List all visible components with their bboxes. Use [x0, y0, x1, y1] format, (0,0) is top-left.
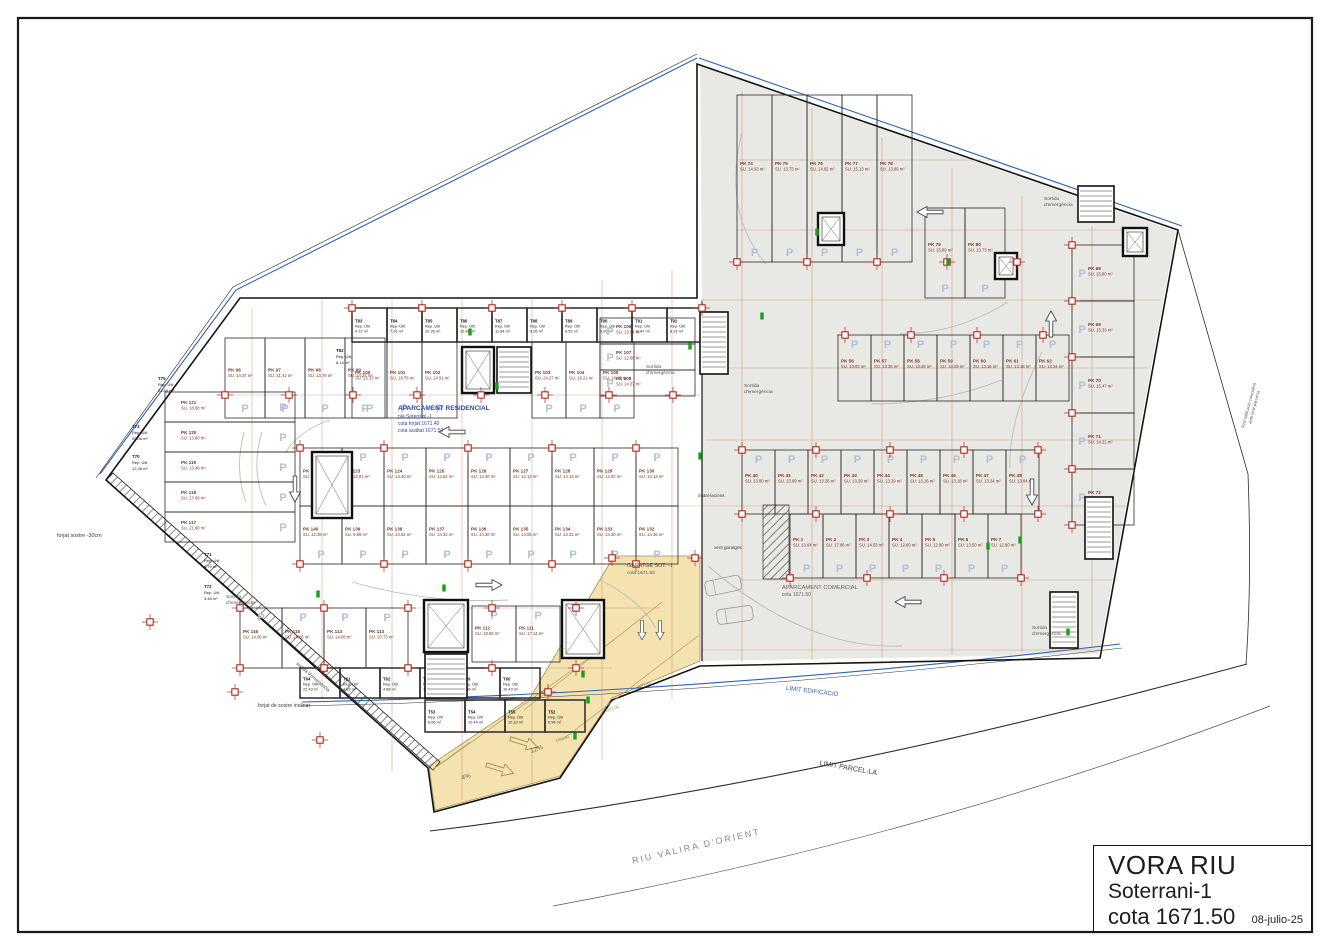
stall-area: SU. 14.30 m² [597, 532, 622, 537]
forjat-inclinat-label: forjat de sostre inclinat [258, 703, 310, 709]
traster-t75-area: 23.88 m² [158, 388, 174, 393]
stall-area: SU. 14.37 m² [616, 382, 641, 387]
p-glyph: P [279, 462, 286, 474]
traster-area: 11.84 m² [495, 328, 511, 333]
traster-t72-rep: Rep. Útil [204, 590, 219, 595]
column-marker [606, 392, 612, 398]
column-marker [1040, 332, 1046, 338]
stall-area: SU. 18.68 m² [181, 406, 206, 411]
column-marker [381, 445, 387, 451]
p-glyph: P [1078, 436, 1085, 448]
column-marker [349, 305, 355, 311]
stall-area: SU. 13.26 m² [811, 478, 836, 483]
stall-id: PK 96 [228, 368, 241, 373]
column-marker [414, 392, 420, 398]
stall-area: SU. 14.40 m² [471, 474, 496, 479]
emergency-exit-marker [316, 591, 319, 598]
stall-area: SU. 12.80 m² [892, 542, 917, 547]
stall-id: PK 126 [471, 468, 487, 473]
p-glyph: P [279, 522, 286, 534]
stall-id: PK 134 [555, 526, 571, 531]
stall-area: SU. 13.39 m² [844, 478, 869, 483]
p-glyph: P [611, 452, 618, 464]
column-marker [1018, 575, 1024, 581]
stall-area: SU. 24.27 m² [535, 375, 560, 380]
direction-arrow [290, 476, 301, 502]
p-glyph: P [485, 549, 492, 561]
stall-id: PK 111 [519, 626, 534, 631]
column-marker [542, 392, 548, 398]
stall-id: PK 46 [943, 473, 956, 478]
stall-id: PK 61 [1006, 359, 1019, 364]
stall-area: SU. 18.78 m² [390, 375, 415, 380]
stall-id: PK 77 [845, 161, 858, 166]
column-marker [961, 511, 967, 517]
stall-id: PK 97 [268, 368, 281, 373]
stall-id: PK 124 [387, 468, 403, 473]
stall-id: PK 41 [778, 473, 791, 478]
column-marker [699, 305, 705, 311]
p-glyph: P [917, 339, 924, 351]
hatched-column [763, 505, 789, 579]
traster-t73-id: T73 [132, 424, 140, 429]
p-glyph: P [981, 283, 988, 295]
p-glyph: P [490, 610, 497, 622]
traster-area: 7.26 m² [390, 328, 404, 333]
stall-id: PK 105 [603, 370, 619, 375]
column-marker [974, 332, 980, 338]
column-marker [297, 561, 303, 567]
stall-area: SU. 14.82 m² [810, 167, 835, 172]
traster-area: 8.05 m² [530, 328, 544, 333]
stall-id: PK 78 [880, 161, 893, 166]
stall-area: SU. 13.50 m² [958, 542, 983, 547]
sortida-2b: d'emergència [744, 389, 773, 395]
forjat-sostre-label: forjat sostre -30cm [57, 533, 102, 539]
column-marker [549, 445, 555, 451]
column-marker [489, 665, 495, 671]
stall-id: PK 107 [616, 350, 632, 355]
traster-t73-rep: Rep. Útil [132, 430, 147, 435]
column-marker [465, 561, 471, 567]
project-name: VORA RIU [1108, 851, 1303, 880]
limit-line-topleft-black [96, 54, 697, 478]
stall-id: PK 135 [513, 526, 529, 531]
stall-id: PK 108 [616, 376, 632, 381]
traster-area: 10.12 m² [508, 719, 524, 724]
plan-shapes [18, 18, 1312, 932]
p-glyph: P [279, 432, 286, 444]
column-marker [633, 445, 639, 451]
emergency-exit-marker [1066, 629, 1069, 636]
p-glyph: P [241, 403, 248, 415]
aparcament-residencial-line3: cota forjat 1671.40 [398, 421, 440, 427]
stall-area: SU. 27.66 m² [181, 496, 206, 501]
p-glyph: P [803, 563, 810, 575]
limit-edificacio-label: LIMIT EDIFICACIÓ [786, 685, 839, 698]
p-glyph: P [527, 452, 534, 464]
traster-area: 4.83 m² [343, 687, 357, 692]
sortida-3a: Sortida [1044, 196, 1060, 202]
stall-area: SU. 13.16 m² [973, 364, 998, 369]
column-marker [1069, 354, 1075, 360]
stall-id: PK 130 [639, 468, 655, 473]
traster-area: 10.43 m² [503, 687, 519, 692]
stall-id: PK 7 [991, 537, 1002, 542]
column-marker [787, 575, 793, 581]
traster-area: 12.80 m² [460, 328, 476, 333]
stall-id: PK 102 [425, 370, 441, 375]
column-marker [573, 605, 579, 611]
traster-t82-id: T82 [336, 348, 344, 353]
column-marker [813, 447, 819, 453]
sortida-1a: Sortida [646, 364, 662, 370]
stall-id: PK 60 [973, 359, 986, 364]
stall-area: SU. 14.06 m² [285, 635, 310, 640]
stall-id: PK 44 [877, 473, 890, 478]
riu-valira-label: RIU VALIRA D'ORIENT [631, 826, 761, 865]
traster-area: 6.06 m² [428, 719, 442, 724]
stall-id: PK 136 [471, 526, 487, 531]
traster-t71-area: 8.79 m² [204, 564, 218, 569]
traster-t73-area: 20.06 m² [132, 436, 148, 441]
stall-id: PK 106 [616, 324, 632, 329]
stall-area: SU. 13.80 m² [181, 436, 206, 441]
stall-area: SU. 12.80 m² [925, 542, 950, 547]
stall-id: PK 98 [308, 368, 321, 373]
emergency-exit-marker [581, 671, 584, 678]
cota-label: cota 1671.50 [1108, 904, 1235, 929]
column-marker [286, 392, 292, 398]
p-glyph: P [869, 563, 876, 575]
p-glyph: P [953, 454, 960, 466]
stall-id: PK 72 [1088, 490, 1101, 495]
column-marker [1069, 242, 1075, 248]
stall-area: SU. 13.73 m² [775, 167, 800, 172]
traster-area: 10.36 m² [425, 328, 441, 333]
column-marker [465, 445, 471, 451]
stall-id: PK 56 [841, 359, 854, 364]
emergency-exit-marker [573, 733, 576, 740]
stall-id: PK 57 [874, 359, 887, 364]
stall-area: SU. 20.73 m² [369, 635, 394, 640]
aparcament-comercial-cota: cota 1671.50 [782, 592, 811, 598]
stall-id: PK 100 [355, 370, 371, 375]
sortida-5a: Sortida [1032, 625, 1048, 631]
column-marker [317, 737, 323, 743]
emergency-exit-marker [468, 329, 471, 336]
stall-area: SU. 13.73 m² [968, 247, 993, 252]
stall-area: SU. 13.39 m² [907, 364, 932, 369]
stall-area: SU. 13.54 m² [616, 330, 641, 335]
stall-area: SU. 13.48 m² [181, 466, 206, 471]
p-glyph: P [851, 339, 858, 351]
stall-area: SU. 13.89 m² [880, 167, 905, 172]
p-glyph: P [854, 454, 861, 466]
aparcament-comercial-title: APARCAMENT COMERCIAL [782, 585, 859, 591]
column-marker [222, 392, 228, 398]
stall-id: PK 70 [1088, 378, 1101, 383]
column-marker [237, 665, 243, 671]
stall-id: PK 120 [181, 430, 197, 435]
p-glyph: P [1078, 324, 1085, 336]
p-glyph: P [606, 326, 613, 338]
stall-id: PK 116 [243, 629, 259, 634]
stall-id: PK 113 [369, 629, 385, 634]
stall-id: PK 59 [940, 359, 953, 364]
column-marker [842, 332, 848, 338]
p-glyph: P [1016, 339, 1023, 351]
p-glyph: P [884, 339, 891, 351]
stall-area: SU. 13.29 m² [877, 478, 902, 483]
traster-t70-rep: Rep. Útil [132, 460, 147, 465]
stall-id: PK 76 [810, 161, 823, 166]
stall-id: PK 3 [859, 537, 870, 542]
column-marker [864, 575, 870, 581]
stall-id: PK 79 [928, 242, 941, 247]
stall-id: PK 138 [387, 526, 403, 531]
column-marker [489, 605, 495, 611]
stall-area: SU. 13.18 m² [943, 478, 968, 483]
emergency-exit-marker [688, 343, 691, 350]
emergency-exit-marker [586, 697, 589, 704]
stall-id: PK 127 [513, 468, 529, 473]
column-marker [908, 332, 914, 338]
stair-core [425, 654, 467, 698]
stall-id: PK 117 [181, 520, 197, 525]
stall-area: SU. 12.38 m² [303, 532, 328, 537]
p-glyph: P [653, 452, 660, 464]
aparcament-residencial-line4: cota acabat 1671.50 [398, 428, 444, 434]
sortida-3b: d'emergència [1044, 202, 1073, 208]
p-glyph: P [755, 454, 762, 466]
p-glyph: P [527, 549, 534, 561]
stall-area: SU. 14.93 m² [740, 167, 765, 172]
traster-t70-area: 12.48 m² [132, 466, 148, 471]
stall-id: PK 115 [285, 629, 301, 634]
emergency-exit-marker [986, 543, 989, 550]
stair-core [1078, 186, 1114, 222]
p-glyph: P [856, 247, 863, 259]
column-marker [692, 555, 698, 561]
stall-area: SU. 13.18 m² [1006, 364, 1031, 369]
traster-t75-rep: Rep. Útil [158, 382, 173, 387]
column-marker [559, 305, 565, 311]
stall-area: SU. 15.13 m² [355, 375, 380, 380]
p-glyph: P [366, 403, 373, 415]
stall-id: PK 133 [597, 526, 613, 531]
stall-area: SU. 14.36 m² [639, 532, 664, 537]
direction-arrow [476, 580, 502, 591]
p-glyph: P [401, 549, 408, 561]
stall-id: PK 139 [345, 526, 361, 531]
column-marker [941, 575, 947, 581]
lane-curve [239, 432, 246, 502]
stall-area: SU. 14.31 m² [555, 532, 580, 537]
stall-area: SU. 14.40 m² [387, 474, 412, 479]
p-glyph: P [569, 452, 576, 464]
column-marker [321, 605, 327, 611]
column-marker [887, 447, 893, 453]
column-marker [874, 259, 880, 265]
p-glyph: P [569, 549, 576, 561]
traster-t72-area: 3.48 m² [204, 596, 218, 601]
p-glyph: P [443, 549, 450, 561]
emergency-exit-marker [442, 585, 445, 592]
stall-area: SU. 13.89 m² [778, 478, 803, 483]
p-glyph: P [653, 549, 660, 561]
stall-id: PK 45 [910, 473, 923, 478]
sortida-2a: Sortida [744, 383, 760, 389]
sortida-4b: d'emergència [226, 600, 255, 606]
stall-id: PK 104 [569, 370, 585, 375]
vent-garatges-label: vent garatges [714, 545, 743, 550]
traster-t71-id: T71 [204, 552, 212, 557]
traster-area: 8.14 m² [670, 328, 684, 333]
column-marker [350, 392, 356, 398]
stair-core [497, 347, 531, 393]
column-marker [961, 447, 967, 453]
traster-area: 0.94 m² [548, 719, 562, 724]
garatge-sot-cota: cota 1671.50 [627, 570, 655, 576]
stall-id: PK 74 [740, 161, 753, 166]
stall-area: SU. 21.41 m² [268, 373, 293, 378]
p-glyph: P [443, 452, 450, 464]
sortida-5b: d'emergència [1032, 631, 1061, 637]
stair-core [1085, 497, 1113, 559]
p-glyph: P [279, 492, 286, 504]
column-marker [1014, 259, 1020, 265]
stall-area: SU. 14.37 m² [228, 373, 253, 378]
column-marker [573, 665, 579, 671]
column-marker [419, 305, 425, 311]
column-marker [734, 259, 740, 265]
stall-area: SU. 13.84 m² [793, 542, 818, 547]
p-glyph: P [983, 339, 990, 351]
stall-id: PK 129 [597, 468, 613, 473]
stall-id: PK 80 [968, 242, 981, 247]
p-glyph: P [257, 612, 264, 624]
stall-area: SU. 13.24 m² [976, 478, 1001, 483]
p-glyph: P [321, 403, 328, 415]
stall-area: SU. 15.80 m² [1088, 272, 1113, 277]
stall-id: PK 43 [844, 473, 857, 478]
p-glyph: P [935, 563, 942, 575]
aparcament-residencial-line2: pla Soterrani -1 [398, 414, 432, 420]
column-marker [405, 605, 411, 611]
stall-area: SU. 14.13 m² [555, 474, 580, 479]
column-marker [549, 561, 555, 567]
title-block: VORA RIU Soterrani-1 cota 1671.50 08-jul… [1093, 845, 1312, 932]
traster-area: 10.44 m² [468, 719, 484, 724]
stall-area: SU. 13.83 m² [841, 364, 866, 369]
garatge-sot-title: GARATGE SOT. -1 [627, 563, 673, 569]
traster-area: 22.43 m² [303, 687, 319, 692]
stall-id: PK 1 [793, 537, 804, 542]
p-glyph: P [1078, 268, 1085, 280]
p-glyph: P [383, 612, 390, 624]
column-marker [813, 511, 819, 517]
p-glyph: P [359, 549, 366, 561]
column-marker [381, 561, 387, 567]
lane-curve [286, 420, 330, 452]
stall-area: SU. 15.47 m² [1088, 384, 1113, 389]
stair-core [700, 312, 728, 374]
stall-area: SU. 15.13 m² [845, 167, 870, 172]
traster-area: 4.72 m² [355, 328, 369, 333]
column-marker [321, 665, 327, 671]
p-glyph: P [968, 563, 975, 575]
column-marker [1069, 466, 1075, 472]
p-glyph: P [887, 454, 894, 466]
stall-id: PK 40 [745, 473, 758, 478]
traster-t71-rep: Rep. Útil [204, 558, 219, 563]
stall-area: SU. 14.02 m² [597, 474, 622, 479]
stall-area: SU. 14.52 m² [387, 532, 412, 537]
emergency-exit-marker [698, 453, 701, 460]
stall-area: SU. 13.24 m² [1039, 364, 1064, 369]
emergency-exit-marker [495, 383, 498, 390]
p-glyph: P [788, 454, 795, 466]
column-marker [629, 305, 635, 311]
column-marker [804, 259, 810, 265]
stair-core [1050, 592, 1078, 648]
column-marker [405, 665, 411, 671]
stall-area: SU. 17.86 m² [826, 542, 851, 547]
stall-area: SU. 14.21 m² [1088, 440, 1113, 445]
p-glyph: P [485, 452, 492, 464]
stall-area: SU. 14.32 m² [429, 532, 454, 537]
emergency-exit-marker [946, 259, 949, 266]
stall-area: SU. 14.13 m² [639, 474, 664, 479]
column-marker [609, 555, 615, 561]
stall-id: PK 121 [181, 400, 197, 405]
traster-t82-rep: Rep. Útil [336, 354, 351, 359]
p-glyph: P [941, 283, 948, 295]
stall-area: SU. 9.86 m² [345, 532, 368, 537]
stall-id: PK 101 [390, 370, 406, 375]
column-marker [739, 447, 745, 453]
column-marker [887, 511, 893, 517]
stall-area: SU. 18.21 m² [569, 375, 594, 380]
stall-area: SU. 12.80 m² [991, 542, 1016, 547]
traster-t70-id: T70 [132, 454, 140, 459]
stall-id: PK 112 [475, 626, 491, 631]
p-glyph: P [341, 612, 348, 624]
stall-area: SU. 13.26 m² [874, 364, 899, 369]
stall-id: PK 2 [826, 537, 837, 542]
stall-area: SU. 14.30 m² [471, 532, 496, 537]
stall-id: PK 140 [303, 526, 319, 531]
aparcament-residencial-title: APARCAMENT RESIDENCIAL [398, 405, 490, 412]
column-marker [478, 392, 484, 398]
p-glyph: P [1001, 563, 1008, 575]
stall-id: PK 42 [811, 473, 824, 478]
p-glyph: P [821, 454, 828, 466]
stall-area: SU. 21.68 m² [181, 526, 206, 531]
column-marker [1035, 447, 1041, 453]
traster-t82-area: 8.14 m² [336, 360, 350, 365]
traster-area: 4.88 m² [383, 687, 397, 692]
limit-parcella-right [1178, 230, 1250, 664]
stall-area: SU. 15.89 m² [928, 247, 953, 252]
p-glyph: P [317, 549, 324, 561]
sortida-4a: Sortida [226, 594, 242, 600]
column-marker [1069, 410, 1075, 416]
stall-area: SU. 13.78 m² [308, 373, 333, 378]
stall-id: PK 4 [892, 537, 903, 542]
stall-id: PK 128 [555, 468, 571, 473]
